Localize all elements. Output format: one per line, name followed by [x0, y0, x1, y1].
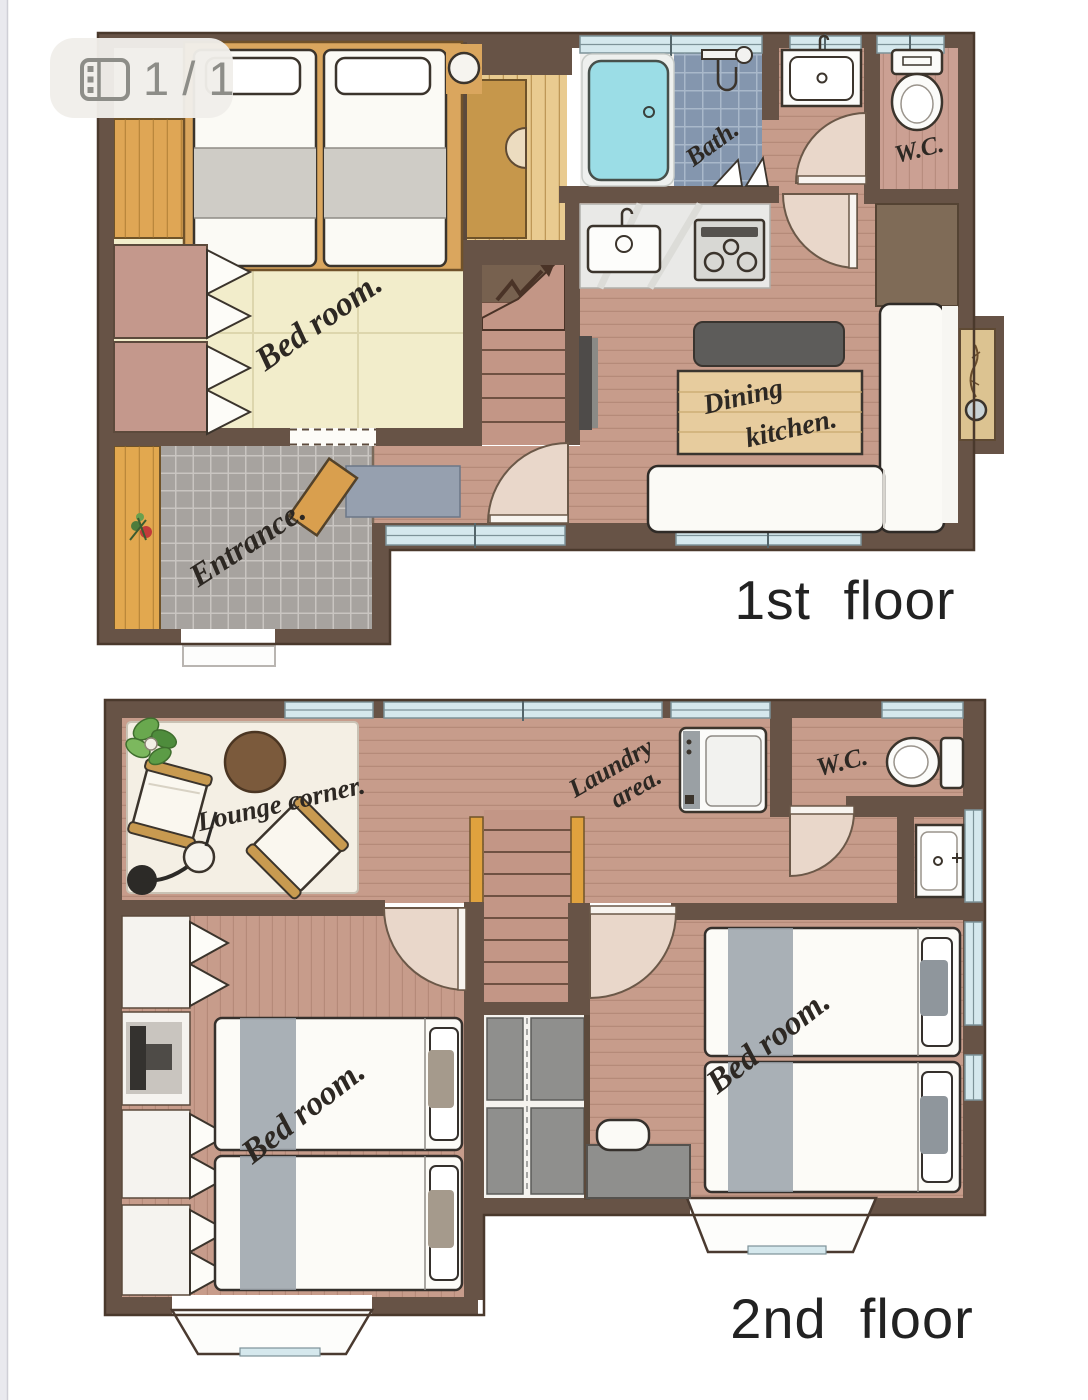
- svg-text:2nd floor: 2nd floor: [730, 1287, 974, 1350]
- svg-text:1 / 1: 1 / 1: [143, 52, 234, 105]
- svg-text:1st floor: 1st floor: [735, 569, 956, 631]
